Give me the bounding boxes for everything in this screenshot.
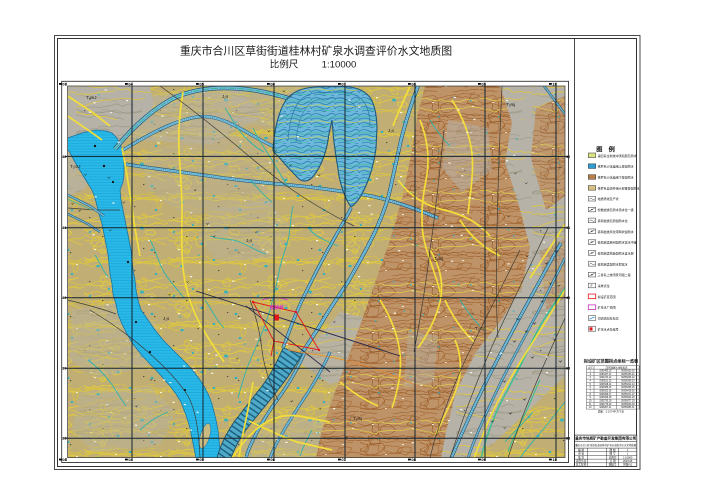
svg-text:36356365.25: 36356365.25 [621, 387, 635, 389]
svg-text:桂林村: 桂林村 [269, 304, 284, 311]
svg-text:38: 38 [62, 436, 67, 441]
svg-text:41: 41 [62, 225, 67, 230]
svg-text:3293733.19: 3293733.19 [599, 401, 612, 403]
svg-text:碎屑岩类孔隙裂隙水位: 碎屑岩类孔隙裂隙水位 [598, 218, 628, 223]
svg-text:日 期: 日 期 [610, 459, 616, 463]
svg-text:三叠系上统须家河组二段: 三叠系上统须家河组二段 [598, 272, 631, 277]
svg-text:05: 05 [199, 81, 204, 86]
svg-text:图幅号: 图幅号 [609, 463, 617, 467]
svg-text:侏罗系自流井组大安寨段裂隙水: 侏罗系自流井组大安寨段裂隙水 [598, 185, 640, 190]
svg-text:07: 07 [341, 81, 346, 86]
svg-text:08: 08 [411, 81, 416, 86]
svg-text:第四系全新统冲洪积层孔隙水: 第四系全新统冲洪积层孔隙水 [598, 153, 637, 158]
svg-text:采样点位: 采样点位 [598, 283, 610, 288]
svg-text:点号: 点号 [588, 365, 593, 369]
svg-text:J₂s: J₂s [163, 316, 170, 321]
svg-text:10: 10 [552, 81, 557, 86]
svg-text:矿泉水点及编号: 矿泉水点及编号 [598, 326, 619, 331]
svg-text:侏罗系沙溪庙组上段裂隙水: 侏罗系沙溪庙组上段裂隙水 [598, 164, 634, 169]
svg-text:03: 03 [62, 81, 67, 86]
svg-text:拟设矿区范围拐点坐标一览表: 拟设矿区范围拐点坐标一览表 [584, 358, 639, 365]
svg-text:侏罗系沙溪庙组下段裂隙水: 侏罗系沙溪庙组下段裂隙水 [598, 175, 634, 180]
svg-text:3293659.17: 3293659.17 [599, 394, 612, 396]
svg-text:36356683.31: 36356683.31 [621, 407, 635, 409]
svg-text:批 准: 批 准 [578, 455, 584, 459]
svg-text:面积：0.1074平方千米: 面积：0.1074平方千米 [598, 409, 624, 413]
svg-text:T₂mJ: T₂mJ [86, 95, 97, 100]
svg-text:08: 08 [411, 457, 416, 462]
svg-text:3293548.14: 3293548.14 [599, 384, 612, 386]
svg-text:36356206.22: 36356206.22 [621, 377, 635, 379]
svg-text:09: 09 [481, 81, 486, 86]
svg-text:碎屑岩类层间裂隙水富水中等: 碎屑岩类层间裂隙水富水中等 [598, 240, 637, 245]
svg-text:04: 04 [128, 457, 133, 462]
svg-text:审 核: 审 核 [578, 452, 584, 456]
svg-text:重庆市合川区草街街道桂林村矿泉水调查评价水文地质图: 重庆市合川区草街街道桂林村矿泉水调查评价水文地质图 [575, 443, 637, 447]
svg-text:3293622.16: 3293622.16 [599, 391, 612, 393]
svg-text:编 制: 编 制 [578, 448, 584, 452]
svg-text:1:10000: 1:10000 [322, 60, 357, 71]
svg-text:36356153.21: 36356153.21 [621, 374, 635, 376]
svg-text:40: 40 [566, 295, 571, 300]
svg-text:41: 41 [566, 225, 571, 230]
svg-text:碎屑岩类风化带网状裂隙水: 碎屑岩类风化带网状裂隙水 [598, 229, 634, 234]
svg-text:1:10000: 1:10000 [623, 455, 633, 459]
svg-text:T₂mj: T₂mj [353, 416, 362, 421]
svg-text:3293511.13: 3293511.13 [599, 381, 612, 383]
svg-text:36356100.20: 36356100.20 [621, 371, 635, 373]
svg-text:07: 07 [341, 457, 346, 462]
svg-text:06: 06 [270, 81, 275, 86]
svg-text:36356630.30: 36356630.30 [621, 404, 635, 406]
svg-text:重庆市合川区草街街道桂林村矿泉水调查评价水文地质图: 重庆市合川区草街街道桂林村矿泉水调查评价水文地质图 [180, 44, 452, 58]
svg-text:36356524.28: 36356524.28 [621, 397, 635, 399]
svg-text:3293585.15: 3293585.15 [599, 387, 612, 389]
svg-text:36356259.23: 36356259.23 [621, 381, 635, 383]
svg-text:J₂x: J₂x [388, 128, 395, 133]
svg-text:碎屑岩类构造裂隙水含水层: 碎屑岩类构造裂隙水含水层 [598, 250, 634, 255]
svg-text:39: 39 [62, 366, 67, 371]
svg-text:38: 38 [566, 436, 571, 441]
svg-text:总工程师: 总工程师 [576, 463, 587, 467]
svg-text:40: 40 [62, 295, 67, 300]
svg-text:图 幅: 图 幅 [610, 448, 616, 452]
svg-text:比例尺: 比例尺 [609, 455, 617, 459]
svg-text:T₂mj: T₂mj [434, 256, 443, 261]
svg-text:地质界线及产状: 地质界线及产状 [598, 196, 619, 201]
svg-text:比例尺: 比例尺 [270, 59, 299, 71]
svg-text:2023.06: 2023.06 [623, 459, 633, 463]
svg-text:矿泉水厂范围: 矿泉水厂范围 [598, 305, 616, 310]
svg-text:松散岩类孔隙水潜水位一级: 松散岩类孔隙水潜水位一级 [598, 207, 634, 212]
svg-text:T₂mj: T₂mj [506, 102, 515, 107]
svg-text:图 例: 图 例 [596, 146, 615, 154]
svg-text:03: 03 [62, 457, 67, 462]
svg-text:10: 10 [552, 457, 557, 462]
svg-text:J₂s: J₂s [246, 238, 253, 243]
svg-text:36356577.29: 36356577.29 [621, 401, 635, 403]
svg-text:2000国家大地坐标系: 2000国家大地坐标系 [606, 365, 629, 369]
svg-text:T₂mJ: T₂mJ [70, 164, 81, 169]
svg-text:重庆市地质矿产勘查开发集团有限公司: 重庆市地质矿产勘查开发集团有限公司 [575, 436, 636, 441]
svg-text:39: 39 [566, 366, 571, 371]
svg-text:09: 09 [481, 457, 486, 462]
svg-text:3293474.12: 3293474.12 [599, 377, 612, 379]
svg-text:3293400.10: 3293400.10 [599, 371, 612, 373]
svg-text:J₂s: J₂s [222, 94, 229, 99]
svg-text:河流流向及标高: 河流流向及标高 [598, 316, 619, 321]
svg-text:42: 42 [566, 154, 571, 159]
svg-text:06: 06 [270, 457, 275, 462]
svg-text:36356471.27: 36356471.27 [621, 394, 635, 396]
svg-text:拟设矿区范围: 拟设矿区范围 [598, 294, 616, 299]
svg-text:3293696.18: 3293696.18 [599, 397, 612, 399]
svg-text:3293770.20: 3293770.20 [599, 404, 612, 406]
svg-text:附图-01: 附图-01 [623, 463, 632, 467]
svg-text:图 号: 图 号 [610, 452, 616, 456]
svg-text:3293437.11: 3293437.11 [599, 374, 612, 376]
svg-text:3293807.21: 3293807.21 [599, 407, 612, 409]
svg-text:碎屑岩类裂隙水弱富水: 碎屑岩类裂隙水弱富水 [598, 261, 628, 266]
svg-text:05: 05 [199, 457, 204, 462]
svg-text:T₂mj: T₂mj [475, 326, 484, 331]
svg-text:04: 04 [128, 81, 133, 86]
svg-text:36356418.26: 36356418.26 [621, 391, 635, 393]
svg-text:42: 42 [62, 154, 67, 159]
svg-text:项目负责: 项目负责 [576, 459, 587, 463]
svg-text:36356312.24: 36356312.24 [621, 384, 635, 386]
